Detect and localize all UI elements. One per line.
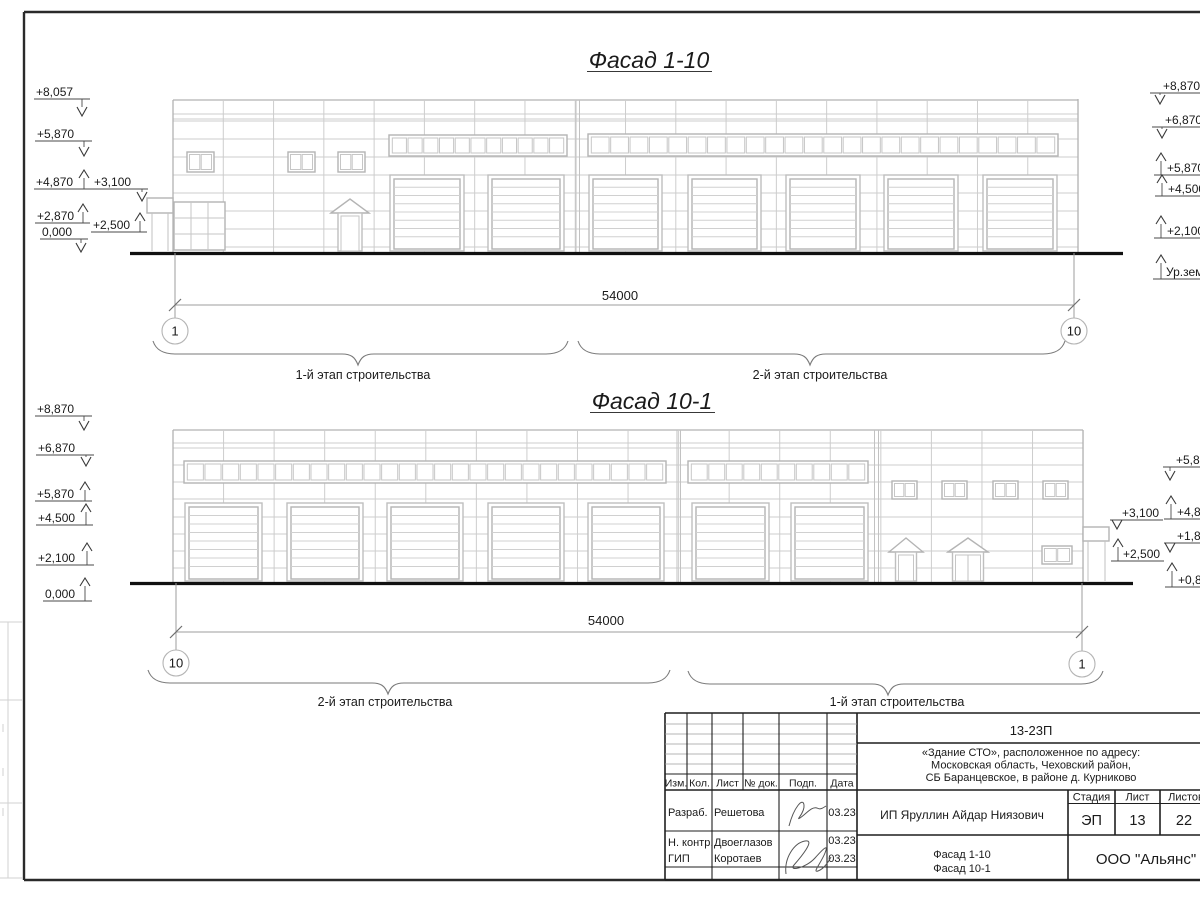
axis-number: 10 [1067,324,1081,339]
elevation-value: +3,100 [94,175,131,189]
stage-brace [688,671,1103,695]
elevation-value: +6,870 [1165,113,1200,127]
row-name: Решетова [714,807,765,819]
elevation-mark: +5,870 [35,127,92,156]
facade-1-10-axes: 540001101-й этап строительства2-й этап с… [153,253,1087,382]
facades-drawing: Фасад 1-10540001101-й этап строительства… [0,0,1200,900]
window [1042,546,1072,564]
pediment [889,538,923,552]
elevation-mark: +2,500 [91,213,147,232]
elevation-value: Ур.зем [1166,265,1200,279]
stage-header: Стадия [1073,792,1111,804]
garage-door [978,175,1062,253]
elevation-value: +5,8 [1176,453,1200,467]
sheets-header: Листов [1168,792,1200,804]
elevation-mark: 0,000 [43,578,92,601]
row-name: Двоеглазов [714,837,773,849]
entrance-door [889,538,923,581]
stage-label: 2-й этап строительства [753,368,888,382]
axis-bubble: 10 [163,650,189,676]
garage-door [781,175,865,253]
elevation-mark: +3,100 [1110,506,1163,529]
drawing-title: Фасад 10-1 [933,863,991,875]
elevation-mark: +8,870 [1150,79,1200,104]
window [187,152,214,172]
stage-label: 2-й этап строительства [318,695,453,709]
stage-value: ЭП [1081,813,1102,829]
elevation-value: +4,8 [1177,505,1200,519]
elevation-value: +8,870 [1163,79,1200,93]
row-role: Разраб. [668,807,708,819]
elevation-mark: +4,8 [1164,496,1200,519]
stage-brace [153,341,568,365]
col-header: Изм. [665,778,688,790]
elevation-mark: +2,100 [36,543,94,565]
ribbon-window [588,134,1058,156]
elevation-mark: +4,500 [36,504,93,525]
drawing-sheet: Фасад 1-10540001101-й этап строительства… [0,0,1200,900]
row-date: 03.23 [828,835,856,847]
elevation-value: +5,870 [37,487,74,501]
drawing-title: Фасад 1-10 [933,849,991,861]
elevation-value: +5,870 [37,127,74,141]
axis-bubble: 1 [1069,651,1095,677]
elevation-value: +8,870 [37,402,74,416]
elevation-value: +2,100 [38,551,75,565]
garage-door [786,503,873,583]
elevation-mark: +8,870 [35,402,92,430]
axis-number: 10 [169,656,183,671]
facade-10-1-axes: 540001012-й этап строительства1-й этап с… [148,583,1103,709]
facade-10-1-openings [180,461,1109,583]
row-date: 03.23 [828,853,856,865]
stage-brace [578,341,1065,365]
row-role: Н. контр. [668,837,713,849]
pediment [331,199,369,213]
garage-door [180,503,267,583]
row-name: Коротаев [714,853,762,865]
elevation-mark: +4,500 [1155,175,1200,196]
left-edge-stamp [0,622,23,878]
col-header: Дата [830,778,853,790]
entrance-canopy [1083,527,1109,581]
signature [786,841,831,874]
garage-door [483,175,569,253]
elevation-mark: +5,870 [1154,153,1200,175]
garage-door [879,175,963,253]
row-date: 03.23 [828,807,856,819]
elevation-mark: +6,870 [36,441,94,466]
elevation-value: +5,870 [1167,161,1200,175]
elevation-value: +2,870 [37,209,74,223]
stage-brace [148,670,670,694]
ribbon-window [389,135,567,156]
elevation-mark: +6,870 [1152,113,1200,138]
elevation-value: +4,500 [38,511,75,525]
title-block: 13-23П«Здание СТО», расположенное по адр… [665,713,1200,880]
client-name: ИП Яруллин Айдар Ниязович [880,808,1044,822]
elevation-mark: +5,8 [1163,453,1200,480]
elevation-mark: 0,000 [40,225,88,252]
organization-name: ООО "Альянс" [1096,851,1196,868]
elevation-mark: +0,8 [1165,563,1200,587]
elevation-value: 0,000 [42,225,72,239]
axis-bubble: 1 [162,318,188,344]
facade-10-1-title: Фасад 10-1 [592,388,713,414]
dimension-label: 54000 [602,288,638,303]
elevation-mark: +5,870 [35,482,92,501]
window [1043,481,1068,499]
project-line: СБ Баранцевское, в районе д. Курниково [926,772,1137,784]
elevation-value: +6,870 [38,441,75,455]
col-header: Лист [716,778,739,790]
elevation-value: +4,870 [36,175,73,189]
dimension-label: 54000 [588,613,624,628]
elevation-mark: +1,8 [1164,529,1200,552]
axis-number: 1 [171,324,178,339]
elevation-value: 0,000 [45,587,75,601]
axis-bubble: 10 [1061,318,1087,344]
elevation-value: +8,057 [36,85,73,99]
elevation-value: +0,8 [1178,573,1200,587]
facade-10-1-drawing: Фасад 10-1540001012-й этап строительства… [35,388,1200,709]
sheet-header: Лист [1126,792,1150,804]
elevation-mark: +8,057 [34,85,90,116]
garage-door [584,175,667,253]
window [942,481,967,499]
window [288,152,315,172]
col-header: Подп. [789,778,817,790]
elevation-mark: +4,870 [34,170,92,189]
elevation-mark: +2,500 [1111,539,1164,561]
signature [789,802,826,826]
garage-door [483,503,569,583]
ribbon-window [184,461,666,483]
doc-number: 13-23П [1010,723,1053,738]
sheet-value: 13 [1129,813,1145,829]
elevation-mark: Ур.зем [1153,255,1200,279]
elevation-value: +4,500 [1168,182,1200,196]
window [338,152,365,172]
signatures [786,802,831,874]
project-line: Московская область, Чеховский район, [931,760,1131,772]
elevation-value: +2,100 [1167,224,1200,238]
garage-door [385,175,469,253]
elevation-mark: +2,100 [1154,216,1200,238]
facade-1-10-drawing: Фасад 1-10540001101-й этап строительства… [34,47,1200,382]
stage-label: 1-й этап строительства [830,695,965,709]
elevation-value: +1,8 [1177,529,1200,543]
storefront-window [174,202,225,250]
window [993,481,1018,499]
elevation-value: +3,100 [1122,506,1159,520]
stage-label: 1-й этап строительства [296,368,431,382]
col-header: № док. [744,778,778,790]
garage-door [583,503,669,583]
garage-door [683,175,766,253]
elevation-mark: +3,100 [92,175,148,201]
entrance-door [331,199,369,251]
elevation-value: +2,500 [93,218,130,232]
garage-door [382,503,468,583]
project-line: «Здание СТО», расположенное по адресу: [922,747,1140,759]
axis-number: 1 [1078,657,1085,672]
col-header: Кол. [689,778,710,790]
garage-door [282,503,368,583]
elevation-mark: +2,870 [35,204,90,223]
elevation-value: +2,500 [1123,547,1160,561]
window [892,481,917,499]
garage-door [687,503,774,583]
sheets-value: 22 [1176,813,1192,829]
ribbon-window [688,461,868,483]
facade-1-10-title: Фасад 1-10 [589,47,710,73]
entrance-canopy [147,198,173,251]
row-role: ГИП [668,853,690,865]
